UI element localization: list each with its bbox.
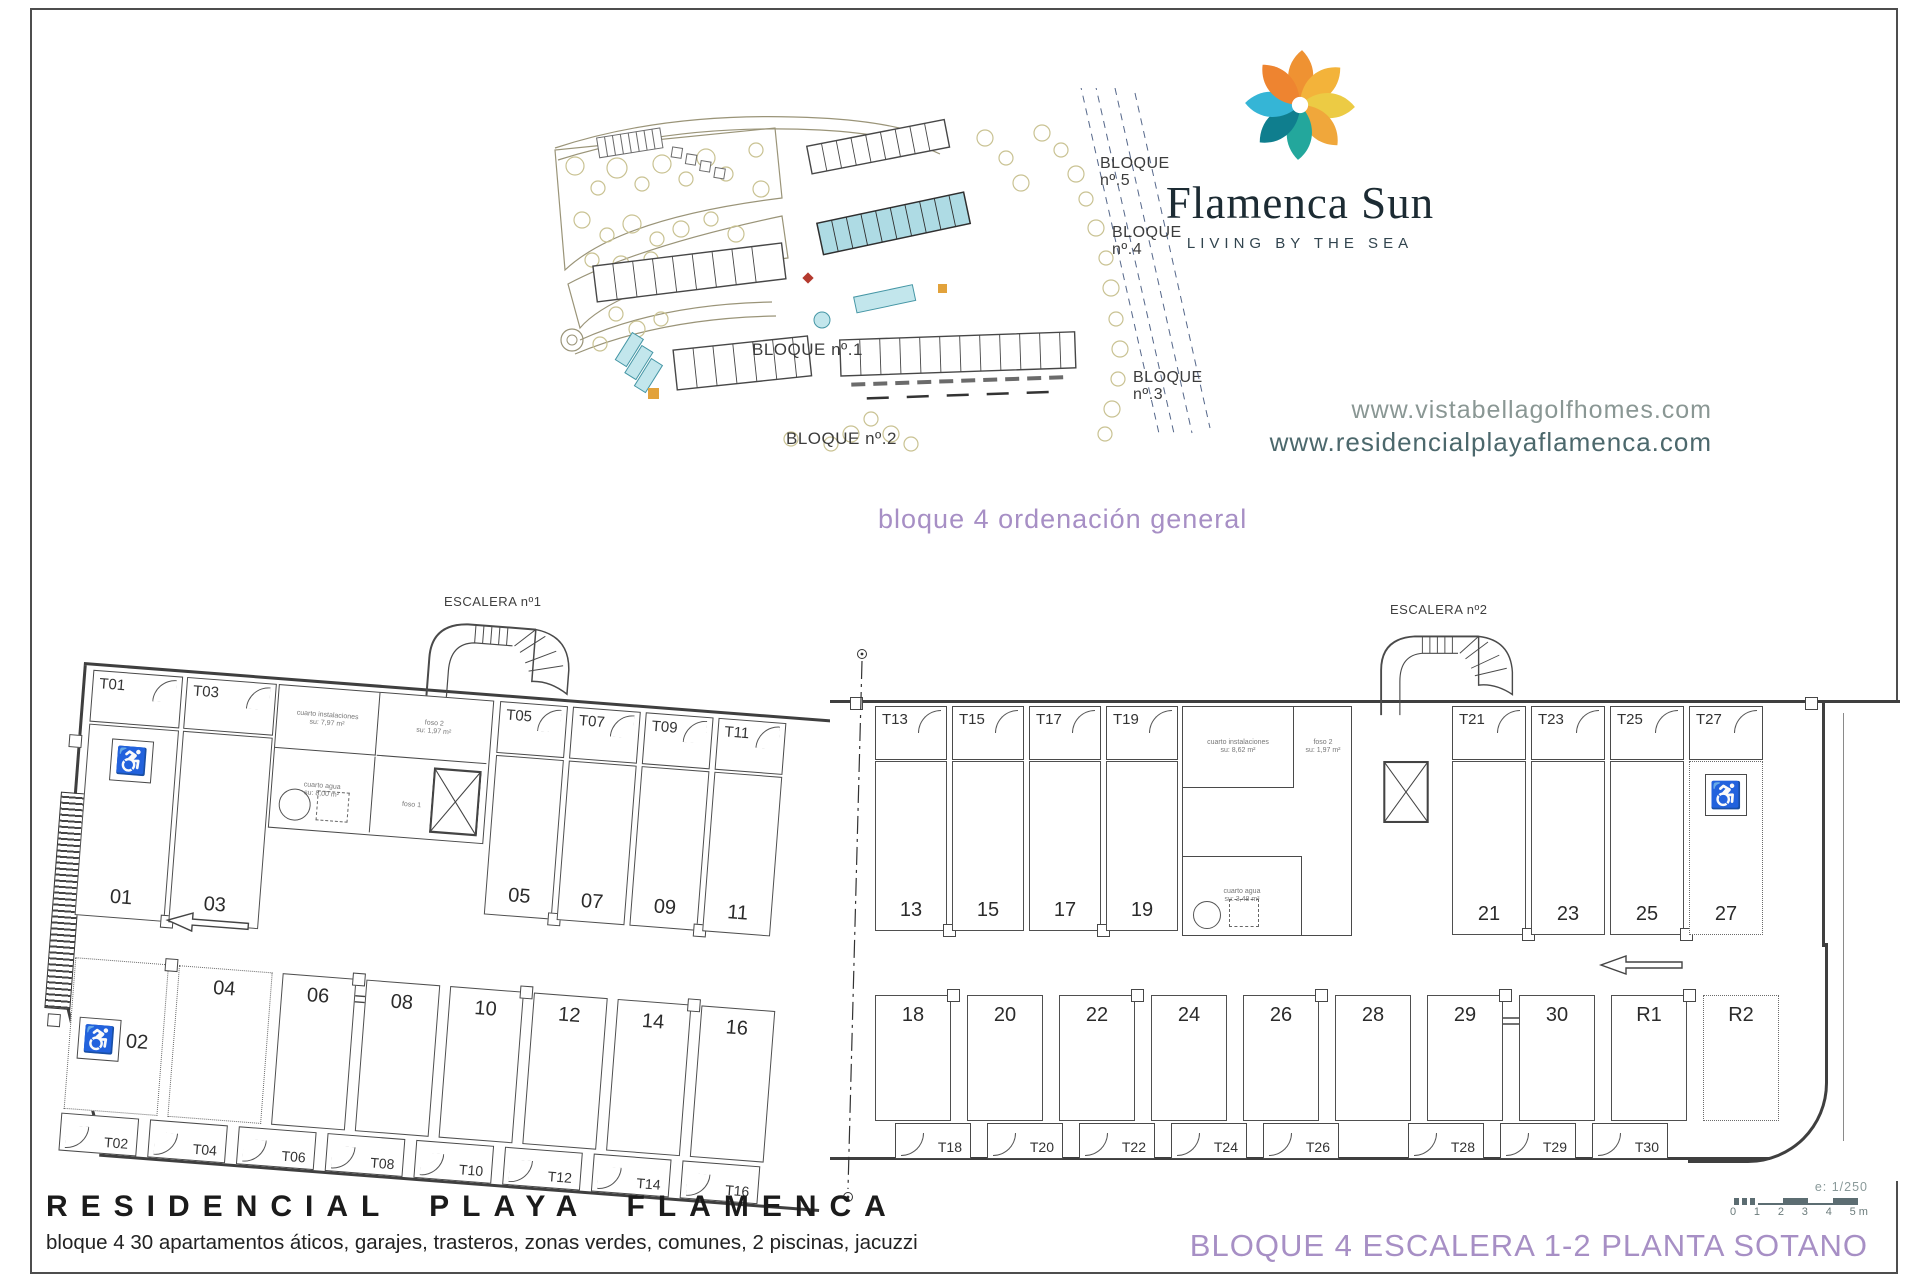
brand-tagline: LIVING BY THE SEA [1148, 235, 1452, 252]
storage-label: T29 [1543, 1139, 1567, 1155]
storage-label: T26 [1306, 1139, 1330, 1155]
wheelchair-icon: ♿ [109, 738, 154, 783]
storage-label: T30 [1635, 1139, 1659, 1155]
logo-block: Flamenca Sun LIVING BY THE SEA [1148, 44, 1452, 252]
parking-stall: ♿10 [439, 986, 524, 1143]
door-arc-icon [1734, 710, 1757, 733]
storage-row-t21-t27: T21T23T25T27 [1452, 706, 1763, 760]
room-instalaciones: cuarto instalacionessu: 8,62 m² [1183, 707, 1294, 788]
parking-row-05-11: ♿05♿07♿09♿11 [484, 755, 782, 937]
room-foso2: foso 2su: 1,97 m² [1295, 707, 1351, 787]
stall-number: 16 [725, 1016, 749, 1041]
stall-number: 18 [902, 1004, 924, 1027]
stall-number: 25 [1636, 903, 1658, 926]
parking-stall: ♿26 [1243, 995, 1319, 1121]
parking-stall: ♿24 [1151, 995, 1227, 1121]
storage-label: T24 [1214, 1139, 1238, 1155]
door-arc-icon [65, 1125, 90, 1150]
stair2-label: ESCALERA nº2 [1390, 602, 1487, 617]
storage-label: T13 [882, 711, 908, 728]
parking-stall: ♿07 [557, 760, 637, 925]
storage-cell: T23 [1531, 706, 1605, 760]
storage-cell: T09 [642, 712, 714, 769]
scale-tick: 1 [1754, 1206, 1760, 1218]
door-arc-icon [1506, 1133, 1529, 1156]
plan-sheet: BLOQUEnº.5 BLOQUEnº.4 BLOQUEnº.3 BLOQUE … [0, 0, 1920, 1280]
door-arc-icon [901, 1133, 924, 1156]
storage-cell: T15 [952, 706, 1024, 760]
stall-number: 21 [1478, 903, 1500, 926]
scale-bar-icon [1734, 1197, 1868, 1205]
pillar [47, 1013, 61, 1027]
door-arc-icon [508, 1159, 533, 1184]
website-urls: www.vistabellagolfhomes.com www.residenc… [1270, 396, 1712, 458]
storage-cell: T03 [183, 677, 277, 736]
url-vistabella: www.vistabellagolfhomes.com [1270, 396, 1712, 425]
room-area: su: 1,97 m² [1305, 747, 1340, 755]
stall-number: 13 [900, 899, 922, 922]
stall-number: 08 [390, 991, 414, 1016]
parking-row-18-r2: ♿18♿20♿22♿24♿26♿28♿29♿30♿R1♿R2 [875, 995, 1779, 1121]
outer-line [1843, 713, 1844, 1141]
parking-stall: ♿29 [1427, 995, 1503, 1121]
scale-tick: 4 [1826, 1206, 1832, 1218]
storage-label: T02 [103, 1134, 128, 1152]
storage-label: T22 [1122, 1139, 1146, 1155]
storage-cell: T25 [1610, 706, 1684, 760]
storage-label: T01 [99, 675, 126, 694]
storage-label: T05 [506, 707, 533, 726]
scale-tick: 3 [1802, 1206, 1808, 1218]
stall-number: 24 [1178, 1004, 1200, 1027]
room-label: cuarto instalaciones [1207, 739, 1269, 747]
stall-number: 11 [726, 901, 748, 926]
stall-number: 06 [306, 984, 330, 1009]
right-wing: T13T15T17T19 cuarto instalacionessu: 8,6… [830, 700, 1900, 1181]
door-arc-icon [1576, 710, 1599, 733]
storage-label: T20 [1030, 1139, 1054, 1155]
section-line [842, 645, 872, 1207]
brand-name: Flamenca Sun [1148, 177, 1452, 229]
wheelchair-icon: ♿ [1705, 774, 1747, 816]
parking-stall: ♿18 [875, 995, 951, 1121]
parking-stall: ♿19 [1106, 761, 1178, 931]
storage-label: T21 [1459, 711, 1485, 728]
utility-rooms-left: cuarto instalacionessu: 7,97 m² foso 2su… [268, 684, 494, 844]
parking-stall: ♿R1 [1611, 995, 1687, 1121]
stall-number: 07 [580, 890, 604, 915]
drive-arrow-left-icon [1598, 953, 1684, 977]
storage-cell: T19 [1106, 706, 1178, 760]
door-arc-icon [918, 710, 941, 733]
storage-cell: T18 [895, 1123, 971, 1159]
parking-stall: ♿28 [1335, 995, 1411, 1121]
parking-stall: ♿02 [64, 957, 169, 1116]
stall-number: 14 [641, 1010, 665, 1035]
storage-label: T19 [1113, 711, 1139, 728]
stair1-label: ESCALERA nº1 [444, 594, 541, 609]
door-arc-icon [993, 1133, 1016, 1156]
block1-label: BLOQUE nº.1 [752, 341, 863, 358]
storage-cell: T01 [89, 670, 183, 729]
room-label: foso 1 [402, 801, 422, 810]
parking-stall: ♿25 [1610, 761, 1684, 935]
stall-number: 17 [1054, 899, 1076, 922]
parking-stall: ♿06 [271, 973, 356, 1130]
scale-tick: 5 m [1850, 1206, 1868, 1218]
storage-cell: T20 [987, 1123, 1063, 1159]
storage-label: T28 [1451, 1139, 1475, 1155]
site-plan-caption: bloque 4 ordenación general [878, 504, 1247, 535]
parking-row-01-03: ♿01♿03 [75, 724, 273, 930]
door-arc-icon [995, 710, 1018, 733]
storage-cell: T02 [58, 1113, 139, 1157]
parking-stall: ♿09 [629, 766, 709, 931]
stall-number: 26 [1270, 1004, 1292, 1027]
door-arc-icon [683, 719, 708, 744]
block4-building-highlighted [817, 192, 970, 254]
scale-block: e: 1/250 012345 m [1728, 1180, 1868, 1218]
stall-number: 09 [653, 895, 677, 920]
storage-label: T06 [281, 1148, 306, 1166]
stall-number: 27 [1715, 903, 1737, 926]
parking-stall: ♿27 [1689, 761, 1763, 935]
parking-stall: ♿04 [167, 965, 272, 1124]
door-arc-icon [597, 1166, 622, 1191]
flamenca-sun-swirl-icon [1239, 44, 1361, 166]
stall-number: 10 [474, 997, 498, 1022]
stall-number: 01 [109, 886, 133, 911]
parking-stall: ♿14 [606, 999, 691, 1156]
block3-building [840, 332, 1077, 401]
storage-cell: T13 [875, 706, 947, 760]
parking-stall: ♿23 [1531, 761, 1605, 935]
parking-stall: ♿17 [1029, 761, 1101, 931]
pillar [1805, 697, 1818, 710]
door-arc-icon [1497, 710, 1520, 733]
storage-cell: T30 [1592, 1123, 1668, 1159]
storage-cell: T21 [1452, 706, 1526, 760]
door-arc-icon [420, 1152, 445, 1177]
stall-number: 15 [977, 899, 999, 922]
storage-cell: T06 [236, 1126, 317, 1170]
room-area: su: 8,62 m² [1220, 747, 1255, 755]
scale-tick: 0 [1730, 1206, 1736, 1218]
left-wing: T01T03 cuarto instalacionessu: 7,97 m² f… [46, 662, 860, 1215]
stall-number: 23 [1557, 903, 1579, 926]
parking-stall: ♿11 [702, 772, 782, 937]
door-arc-icon [331, 1146, 356, 1171]
door-arc-icon [1072, 710, 1095, 733]
room-label: foso 2 [1313, 739, 1332, 747]
door-arc-icon [1177, 1133, 1200, 1156]
parking-stall: ♿30 [1519, 995, 1595, 1121]
room-area: su: 7,97 m² [309, 718, 345, 729]
storage-row-t28-t30: T28T29T30 [1408, 1123, 1668, 1159]
door-arc-icon [537, 708, 562, 733]
storage-label: T25 [1617, 711, 1643, 728]
parking-stall: ♿15 [952, 761, 1024, 931]
door-arc-icon [1655, 710, 1678, 733]
storage-cell: T22 [1079, 1123, 1155, 1159]
storage-cell: T27 [1689, 706, 1763, 760]
door-arc-icon [610, 714, 635, 739]
storage-cell: T08 [325, 1133, 406, 1177]
stall-number: 19 [1131, 899, 1153, 922]
scale-ticks: 012345 m [1730, 1206, 1868, 1218]
parking-stall: ♿20 [967, 995, 1043, 1121]
door-arc-icon [153, 1132, 178, 1157]
storage-label: T11 [724, 723, 750, 742]
door-arc-icon [242, 1139, 267, 1164]
storage-label: T03 [192, 682, 219, 701]
storage-cell: T24 [1171, 1123, 1247, 1159]
parking-row-13-19: ♿13♿15♿17♿19 [875, 761, 1178, 931]
storage-cell: T11 [715, 718, 787, 775]
url-playaflamenca: www.residencialplayaflamenca.com [1270, 427, 1712, 458]
stall-number: 30 [1546, 1004, 1568, 1027]
parking-stall: ♿R2 [1703, 995, 1779, 1121]
elevator-icon [1383, 761, 1429, 823]
room-instalaciones: cuarto instalacionessu: 7,97 m² [275, 685, 381, 756]
storage-label: T17 [1036, 711, 1062, 728]
block5-building [807, 120, 950, 174]
storage-cell: T07 [569, 707, 641, 764]
door-arc-icon [1149, 710, 1172, 733]
water-tank-icon [1193, 901, 1221, 929]
storage-label: T08 [370, 1154, 395, 1172]
stall-number: 04 [212, 977, 236, 1002]
stall-number: 20 [994, 1004, 1016, 1027]
stall-number: 02 [125, 1030, 149, 1055]
door-arc-icon [1598, 1133, 1621, 1156]
storage-cell: T05 [496, 701, 568, 758]
door-arc-icon [152, 678, 177, 703]
room-area: su: 1,97 m² [416, 727, 452, 738]
door-arc-icon [755, 725, 780, 750]
storage-cell: T04 [147, 1119, 228, 1163]
stall-number: 22 [1086, 1004, 1108, 1027]
storage-label: T27 [1696, 711, 1722, 728]
elevator-icon [429, 765, 482, 838]
parking-row-21-27: ♿21♿23♿25♿27 [1452, 761, 1763, 935]
parking-stall: ♿13 [875, 761, 947, 931]
project-subtitle: bloque 4 30 apartamentos áticos, garajes… [46, 1231, 918, 1255]
storage-label: T10 [458, 1161, 483, 1179]
equipment-dashed-box [316, 790, 350, 822]
storage-label: T12 [547, 1168, 572, 1186]
stair2-icon [1368, 627, 1518, 717]
storage-label: T23 [1538, 711, 1564, 728]
parking-stall: ♿01 [75, 724, 179, 922]
block2-label: BLOQUE nº.2 [786, 430, 897, 447]
pillar [68, 734, 82, 748]
stall-number: R1 [1636, 1004, 1662, 1027]
project-title: RESIDENCIAL PLAYA FLAMENCA [46, 1190, 899, 1224]
wall [1822, 703, 1825, 947]
parking-stall: ♿16 [690, 1005, 775, 1162]
storage-cell: T28 [1408, 1123, 1484, 1159]
wheelchair-icon: ♿ [77, 1017, 122, 1062]
parking-stall: ♿12 [522, 992, 607, 1149]
parking-stall: ♿03 [168, 731, 272, 929]
parking-stall: ♿22 [1059, 995, 1135, 1121]
sheet-title: BLOQUE 4 ESCALERA 1-2 PLANTA SOTANO [1190, 1228, 1868, 1264]
stall-number: 05 [507, 884, 531, 909]
storage-cell: T26 [1263, 1123, 1339, 1159]
door-arc-icon [1085, 1133, 1108, 1156]
storage-label: T04 [192, 1141, 217, 1159]
door-arc-icon [1414, 1133, 1437, 1156]
storage-cell: T12 [502, 1147, 583, 1191]
parking-stall: ♿05 [484, 755, 564, 920]
door-arc-icon [246, 686, 271, 711]
stall-number: 29 [1454, 1004, 1476, 1027]
block1-building [593, 243, 786, 302]
storage-label: T09 [651, 718, 678, 737]
storage-label: T07 [578, 712, 605, 731]
block3-label: BLOQUEnº.3 [1133, 369, 1203, 403]
room-label: cuarto agua [1224, 888, 1261, 896]
scale-label: e: 1/250 [1728, 1180, 1868, 1194]
door-arc-icon [1269, 1133, 1292, 1156]
storage-cell: T10 [413, 1140, 494, 1184]
storage-cell: T17 [1029, 706, 1101, 760]
storage-row-t18-t26: T18T20T22T24T26 [895, 1123, 1339, 1159]
scale-tick: 2 [1778, 1206, 1784, 1218]
storage-cell: T29 [1500, 1123, 1576, 1159]
stall-number: 12 [557, 1003, 581, 1028]
stall-number: R2 [1728, 1004, 1754, 1027]
storage-label: T15 [959, 711, 985, 728]
storage-label: T18 [938, 1139, 962, 1155]
storage-row-t13-t19: T13T15T17T19 [875, 706, 1178, 760]
parking-stall: ♿08 [355, 980, 440, 1137]
stall-number: 28 [1362, 1004, 1384, 1027]
utility-rooms-right: cuarto instalacionessu: 8,62 m² foso 2su… [1182, 706, 1352, 936]
parking-stall: ♿21 [1452, 761, 1526, 935]
equipment-dashed-box [1229, 899, 1259, 927]
room-foso2: foso 2su: 1,97 m² [377, 693, 492, 764]
